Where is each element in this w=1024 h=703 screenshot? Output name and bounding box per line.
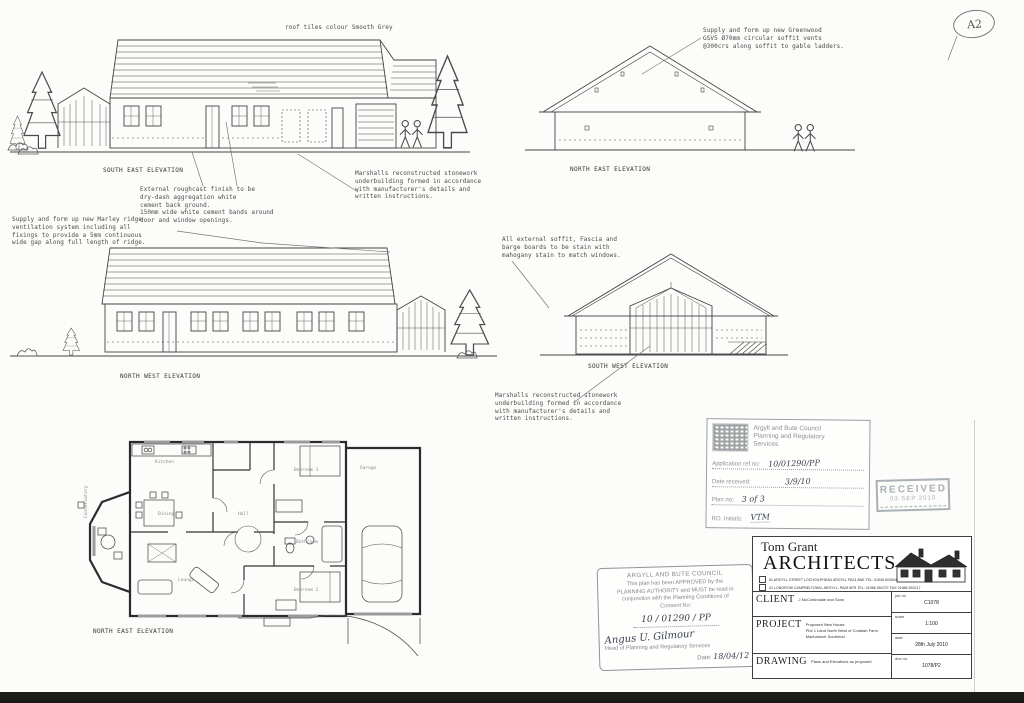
job-no-label: job no <box>895 593 968 598</box>
person-figure-icon <box>412 121 423 148</box>
approval-date-value: 18/04/12 <box>713 651 749 661</box>
label-south-east-elevation: SOUTH EAST ELEVATION <box>103 167 183 174</box>
conifer-tree-icon <box>24 72 60 148</box>
ro-initials-value: VTM <box>750 512 770 522</box>
date-label: date <box>895 635 968 640</box>
label-floor-plan: NORTH EAST ELEVATION <box>93 628 173 635</box>
person-figure-icon <box>805 125 816 152</box>
room-label-bathroom: Bathroom <box>296 540 318 545</box>
note-soffit-stain: All external soffit, Fascia and barge bo… <box>502 236 621 259</box>
project-value: Proposed New House Plot 1 Land North Wes… <box>806 619 878 640</box>
person-figure-icon <box>400 121 411 148</box>
drw-no-label: drw no. <box>895 656 968 661</box>
application-ref-value: 10/01290/PP <box>768 458 820 468</box>
room-label-conservatory: Conservatory <box>84 485 89 518</box>
client-value: J McCorkindale and Sons <box>799 594 845 603</box>
address-checkbox <box>759 576 766 583</box>
label-south-west-elevation: SOUTH WEST ELEVATION <box>588 363 668 370</box>
approval-stamp-body: This plan has been APPROVED by the PLANN… <box>603 578 748 612</box>
address-line-2: 41 LONGROW CAMPBELTOWN, ARGYLL, PA28 6ER… <box>769 586 921 590</box>
drawing-value: Plans and Elevations as proposed <box>811 656 871 665</box>
note-stonework-2: Marshalls reconstructed stonework underb… <box>495 392 621 423</box>
received-stamp-dashes <box>880 505 946 508</box>
car-icon <box>362 526 402 602</box>
barcode-icon <box>712 423 748 451</box>
north-west-elevation-drawing <box>5 240 505 362</box>
person-figure-icon <box>793 125 804 152</box>
drawing-sheet: Kitchen Dining Lounge Hall Bathroom Bedr… <box>0 0 1024 703</box>
conifer-tree-icon <box>451 290 489 355</box>
date-received-value: 3/9/10 <box>785 477 811 487</box>
label-north-east-elevation: NORTH EAST ELEVATION <box>570 166 650 173</box>
plan-no-label: Plan no: <box>712 497 734 503</box>
scale-value: 1:100 <box>895 621 968 627</box>
room-label-hall: Hall <box>238 512 249 517</box>
south-east-elevation-drawing <box>8 28 478 163</box>
floor-plan-drawing <box>78 430 438 660</box>
client-label: CLIENT <box>756 594 795 605</box>
received-stamp: RECEIVED 03 SEP 2010 <box>876 478 951 512</box>
label-north-west-elevation: NORTH WEST ELEVATION <box>120 373 200 380</box>
south-west-elevation-drawing <box>538 246 793 361</box>
page-ref-text: A2 <box>966 17 982 31</box>
conservatory-bay <box>90 492 130 592</box>
plan-no-value: 3 of 3 <box>742 494 765 504</box>
note-roof-tiles: roof tiles colour Smooth Grey <box>285 24 393 32</box>
planning-stamp: Argyll and Bute Council Planning and Reg… <box>705 418 870 530</box>
note-ridge-vent: Supply and form up new Marley ridge vent… <box>12 216 146 247</box>
received-stamp-date: 03 SEP 2010 <box>880 495 946 503</box>
scan-bottom-bar <box>0 692 1024 703</box>
title-block: Tom Grant ARCHITECTS 51 ARGYLL STREET LO… <box>752 536 972 679</box>
drw-no-value: 1078/P2 <box>895 663 968 669</box>
ridge-tag-smudge <box>248 83 280 91</box>
planning-stamp-authority: Argyll and Bute Council Planning and Reg… <box>753 424 824 449</box>
room-label-dining: Dining <box>158 512 174 517</box>
received-stamp-word: RECEIVED <box>880 483 946 496</box>
room-label-lounge: Lounge <box>178 578 194 583</box>
note-soffit-vents: Supply and form up new Greenwood GSV5 Ø7… <box>703 27 844 50</box>
application-ref-label: Application ref no: <box>712 461 760 468</box>
job-no-value: C1078 <box>895 600 968 606</box>
room-label-garage: Garage <box>360 466 376 471</box>
approval-stamp: ARGYLL AND BUTE COUNCIL This plan has be… <box>597 564 756 671</box>
note-roughcast: External roughcast finish to be dry-dash… <box>140 186 274 225</box>
conifer-tree-icon <box>63 328 80 355</box>
house-logo-icon <box>891 545 969 585</box>
consent-no-value: 10 / 01290 / PP <box>633 611 719 628</box>
project-label: PROJECT <box>756 619 802 630</box>
room-label-kitchen: Kitchen <box>155 460 174 465</box>
conifer-tree-icon <box>428 56 467 148</box>
date-value: 28th July 2010 <box>895 642 968 648</box>
north-east-elevation-drawing <box>525 32 860 157</box>
paper-edge-line <box>974 420 975 692</box>
address-line-1: 51 ARGYLL STREET LOCHGILPHEAD ARGYLL PA3… <box>769 578 897 582</box>
scale-label: scale <box>895 614 968 619</box>
shrub-icon <box>17 349 37 356</box>
address-checkbox <box>759 584 766 591</box>
approval-date-label: Date: <box>697 655 712 661</box>
note-stonework-1: Marshalls reconstructed stonework underb… <box>355 170 481 201</box>
ro-initials-label: RO. Initials: <box>711 516 742 522</box>
date-received-label: Date received: <box>712 479 751 485</box>
drawing-label: DRAWING <box>756 656 807 667</box>
page-ref-badge: A2 <box>951 7 996 41</box>
room-label-bedroom2: Bedroom 2 <box>294 588 318 593</box>
room-label-bedroom1: Bedroom 1 <box>294 468 318 473</box>
